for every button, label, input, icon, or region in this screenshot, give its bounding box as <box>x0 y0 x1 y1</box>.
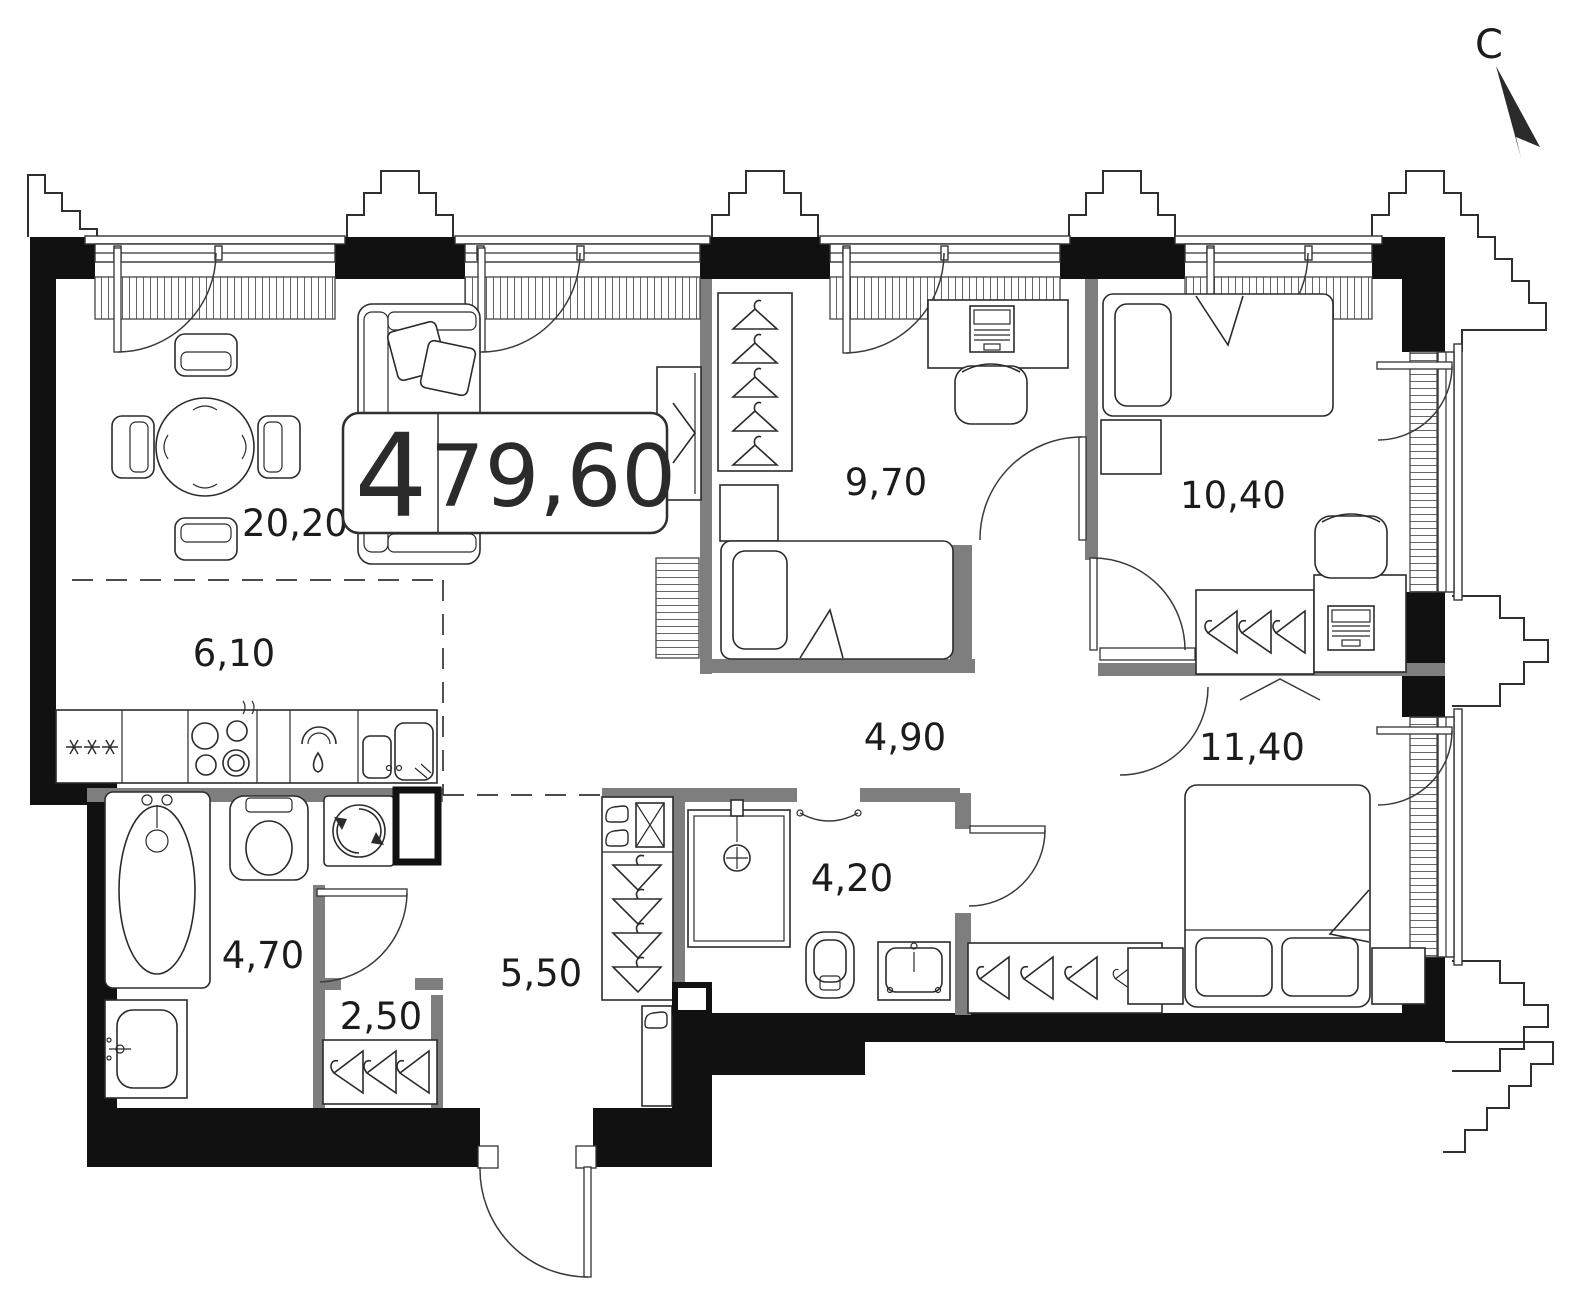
window-right-master <box>1377 709 1462 965</box>
toilet <box>806 932 854 998</box>
radiator-strip <box>1410 717 1437 957</box>
radiator-strip <box>465 277 700 319</box>
bedside-table <box>1128 948 1183 1004</box>
bathroom-sink <box>105 1000 187 1098</box>
apartment-badge: 4 79,60 <box>343 410 676 544</box>
compass-north-label: С <box>1475 22 1503 68</box>
shower-room-fixtures <box>688 800 950 1000</box>
room-label-shower: 4,20 <box>811 857 893 900</box>
radiator-strip <box>95 277 335 319</box>
bedside-table <box>1101 420 1161 474</box>
room-label-corridor: 4,90 <box>864 716 946 759</box>
desk-with-laptop <box>928 300 1068 368</box>
badge-total-area: 79,60 <box>430 427 676 527</box>
desk-chair <box>1315 514 1387 578</box>
entrance-door <box>478 1146 596 1277</box>
floorplan-canvas: 20,20 6,10 9,70 10,40 4,90 11,40 4,70 2,… <box>0 0 1579 1305</box>
duct-shaft <box>396 790 438 862</box>
pillow <box>1282 938 1358 996</box>
master-bedroom-furniture <box>968 785 1425 1013</box>
dresser <box>720 485 778 541</box>
bathtub <box>105 792 210 988</box>
closet-wardrobe <box>323 1040 437 1104</box>
sofa-pillow <box>420 340 477 397</box>
compass-north: С <box>1475 22 1540 158</box>
shower-cabin <box>688 800 790 947</box>
pillow <box>733 551 787 649</box>
room-label-hall: 5,50 <box>500 952 582 995</box>
north-arrow-icon <box>1496 66 1540 158</box>
room-label-bedroom2: 10,40 <box>1180 474 1286 517</box>
window-right-bedroom2 <box>1377 344 1462 600</box>
pillow <box>1196 938 1272 996</box>
bedside-table <box>1372 948 1425 1004</box>
room-label-bathroom: 4,70 <box>222 934 304 977</box>
toilet <box>230 796 308 880</box>
wardrobe <box>1196 590 1314 674</box>
radiator-living <box>656 558 699 658</box>
pillow <box>1115 304 1171 406</box>
badge-rooms-count: 4 <box>354 410 427 544</box>
sink <box>878 942 950 1000</box>
radiator-strip <box>1410 352 1437 592</box>
single-bed <box>1103 294 1333 416</box>
room-label-bedroom1: 9,70 <box>845 461 927 504</box>
folding-door-symbol <box>1240 679 1320 700</box>
washing-machine <box>324 796 394 866</box>
window-living-1 <box>85 236 345 319</box>
room-label-master: 11,40 <box>1199 726 1305 769</box>
double-bed <box>1185 785 1370 1007</box>
room-label-closet: 2,50 <box>340 995 422 1038</box>
desk-chair <box>955 364 1027 424</box>
wardrobe <box>718 293 792 471</box>
desk-with-laptop <box>1314 575 1406 672</box>
room-label-kitchen: 6,10 <box>193 632 275 675</box>
doorway-threshold <box>1100 648 1195 660</box>
sliding-door-symbol <box>800 813 858 821</box>
room-label-living: 20,20 <box>242 502 348 545</box>
single-bed <box>721 541 953 659</box>
kitchen-counter <box>56 701 437 783</box>
duct-shaft <box>675 985 709 1013</box>
window-living-2 <box>455 236 710 319</box>
